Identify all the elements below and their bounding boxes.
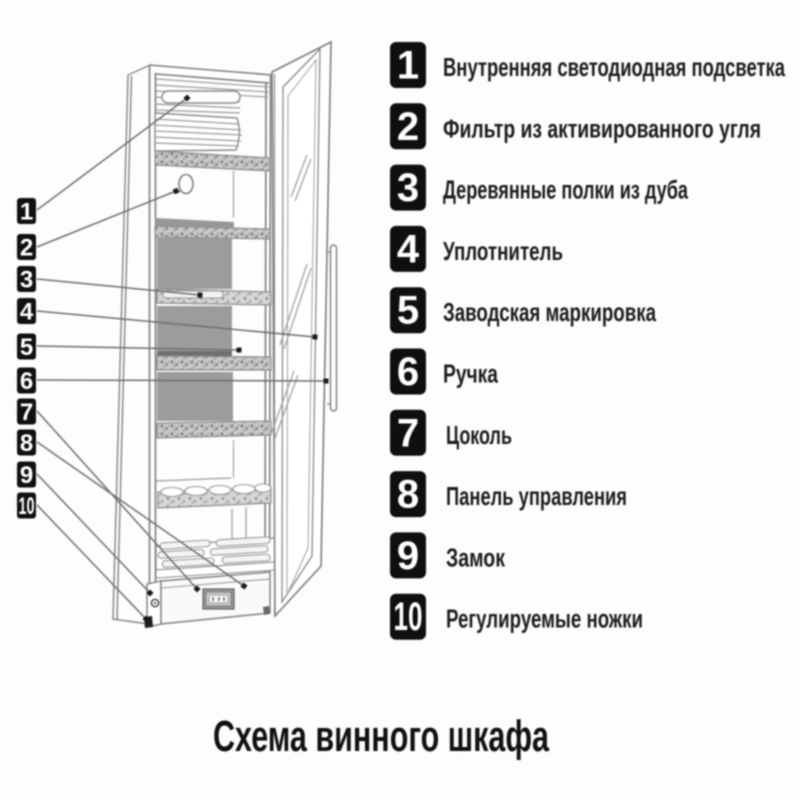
svg-text:Заводская маркировка: Заводская маркировка — [443, 297, 656, 327]
svg-text:10: 10 — [394, 595, 423, 639]
svg-text:4: 4 — [20, 298, 34, 325]
svg-text:2: 2 — [397, 105, 419, 149]
svg-text:8: 8 — [397, 473, 419, 517]
svg-text:Схема винного шкафа: Схема винного шкафа — [213, 712, 549, 761]
svg-text:6: 6 — [20, 368, 33, 395]
svg-text:10: 10 — [19, 493, 35, 520]
svg-text:8: 8 — [20, 430, 33, 457]
svg-text:Внутренняя светодиодная подсве: Внутренняя светодиодная подсветка — [443, 52, 785, 82]
svg-text:9: 9 — [397, 534, 419, 578]
svg-text:Уплотнитель: Уплотнитель — [443, 236, 563, 266]
svg-text:Замок: Замок — [446, 542, 506, 572]
svg-text:7: 7 — [20, 399, 33, 426]
svg-text:Панель управления: Панель управления — [446, 481, 627, 511]
svg-text:5: 5 — [397, 289, 419, 333]
svg-text:2: 2 — [20, 234, 33, 261]
svg-text:Регулируемые ножки: Регулируемые ножки — [446, 604, 643, 634]
svg-text:3: 3 — [20, 266, 33, 293]
svg-text:Ручка: Ручка — [443, 359, 498, 389]
svg-text:4: 4 — [397, 227, 420, 271]
svg-text:1: 1 — [397, 44, 419, 88]
svg-text:3: 3 — [397, 166, 419, 210]
svg-text:9: 9 — [20, 462, 33, 489]
svg-text:5: 5 — [20, 334, 33, 361]
svg-text:7: 7 — [397, 411, 419, 455]
svg-text:Цоколь: Цоколь — [446, 420, 512, 450]
svg-text:Фильтр из активированного угля: Фильтр из активированного угля — [443, 113, 761, 143]
svg-text:1: 1 — [20, 198, 33, 225]
svg-text:Деревянные полки из дуба: Деревянные полки из дуба — [443, 175, 688, 205]
svg-text:6: 6 — [397, 350, 419, 394]
